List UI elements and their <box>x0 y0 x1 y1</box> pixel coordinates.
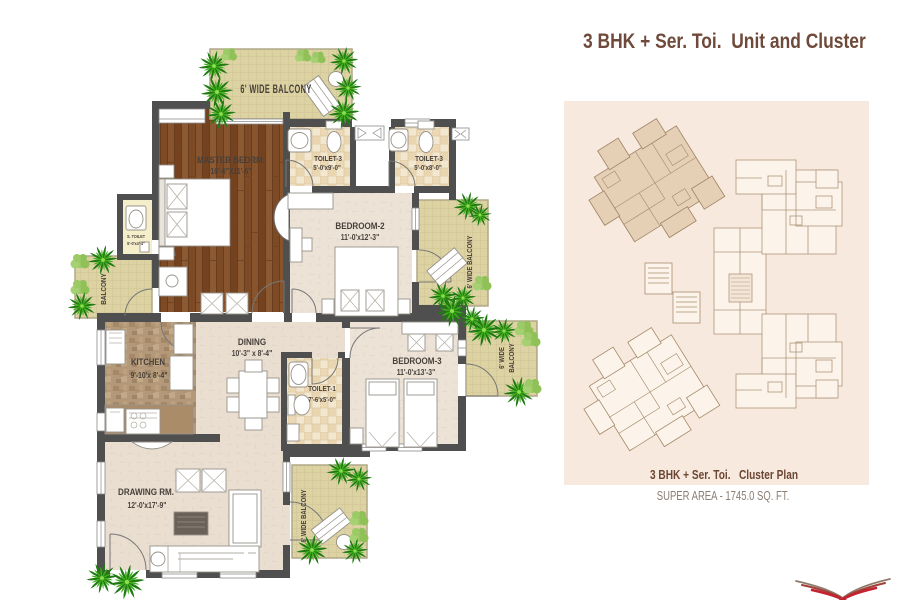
svg-text:DINING: DINING <box>238 336 266 347</box>
svg-text:BALCONY: BALCONY <box>509 343 517 373</box>
svg-text:16'-6"X11'-6": 16'-6"X11'-6" <box>211 166 252 176</box>
svg-text:3 BHK + Ser. Toi. Unit and Cl: 3 BHK + Ser. Toi. Unit and Cluster <box>583 31 866 54</box>
svg-text:5'-0'x9'-0": 5'-0'x9'-0" <box>313 165 341 173</box>
svg-text:TOILET-3: TOILET-3 <box>314 156 342 164</box>
svg-text:KITCHEN: KITCHEN <box>131 356 165 367</box>
svg-text:6' WIDE BALCONY: 6' WIDE BALCONY <box>467 235 475 289</box>
svg-text:SUPER AREA - 1745.0 SQ. FT.: SUPER AREA - 1745.0 SQ. FT. <box>657 490 789 504</box>
svg-text:5'-0'x4'-4": 5'-0'x4'-4" <box>127 241 145 246</box>
svg-text:3 BHK + Ser. Toi. Cluster Pl: 3 BHK + Ser. Toi. Cluster Plan <box>650 468 798 482</box>
svg-text:TOILET-1: TOILET-1 <box>308 386 336 394</box>
svg-text:DRAWING RM.: DRAWING RM. <box>118 486 174 497</box>
svg-text:9'-10'x 8'-4": 9'-10'x 8'-4" <box>130 370 168 380</box>
svg-text:11'-0'x13'-3": 11'-0'x13'-3" <box>397 367 436 377</box>
svg-text:6' WIDE BALCONY: 6' WIDE BALCONY <box>240 83 311 96</box>
svg-text:10'-3" x 8'-4": 10'-3" x 8'-4" <box>232 348 273 358</box>
svg-text:6' WIDE BALCONY: 6' WIDE BALCONY <box>301 489 309 543</box>
svg-text:BEDROOM-2: BEDROOM-2 <box>335 220 384 231</box>
svg-text:7'-6'x5'-0": 7'-6'x5'-0" <box>308 397 336 405</box>
svg-text:BALCONY: BALCONY <box>101 273 109 305</box>
svg-text:12'-0'x17'-9": 12'-0'x17'-9" <box>128 500 167 510</box>
svg-text:S. TOILET: S. TOILET <box>127 234 146 239</box>
svg-text:5'-0'x8'-0": 5'-0'x8'-0" <box>414 165 442 173</box>
svg-text:MASTER BEDRM.: MASTER BEDRM. <box>197 154 265 165</box>
svg-text:BEDROOM-3: BEDROOM-3 <box>392 355 441 366</box>
svg-text:TOILET-3: TOILET-3 <box>415 156 443 164</box>
svg-text:11'-0'x12'-3": 11'-0'x12'-3" <box>341 232 380 242</box>
svg-text:6' WIDE: 6' WIDE <box>499 346 507 368</box>
